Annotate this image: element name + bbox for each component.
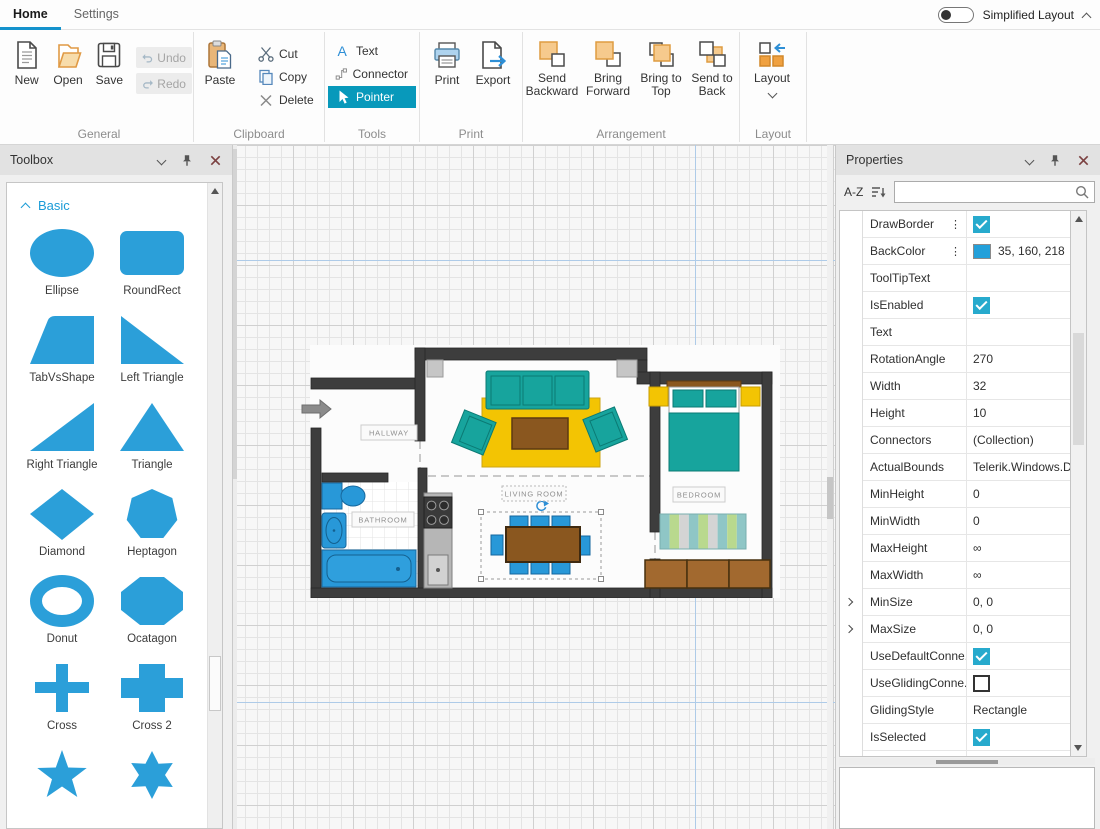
triangle-shape-icon xyxy=(119,401,185,453)
toolbox-shape-star5[interactable] xyxy=(29,749,95,807)
expander-icon[interactable] xyxy=(845,625,853,633)
dining-table[interactable] xyxy=(506,527,580,562)
undo-icon xyxy=(142,51,153,65)
property-value[interactable] xyxy=(967,751,1071,757)
toolbox-shape-tabvsshape[interactable]: TabVsShape xyxy=(29,314,95,384)
bedroom-rug[interactable] xyxy=(660,514,746,549)
property-name: IsEnabled xyxy=(863,292,967,318)
value-text: 0 xyxy=(973,514,980,528)
svg-text:A: A xyxy=(338,43,348,59)
guide-line-horizontal xyxy=(233,702,835,703)
properties-title: Properties xyxy=(846,153,903,167)
property-name: MinHeight xyxy=(863,481,967,507)
connector-ic on xyxy=(335,66,348,82)
room-label-bedroom[interactable]: BEDROOM xyxy=(673,487,725,502)
tab-settings[interactable]: Settings xyxy=(61,0,132,30)
property-row[interactable]: Text xyxy=(863,319,1071,346)
toolbox-shape-heptagon[interactable]: Heptagon xyxy=(119,488,185,558)
ellipse-shape-icon xyxy=(29,227,95,279)
property-row[interactable]: MaxWidth∞ xyxy=(863,562,1071,589)
bring-forward-button[interactable]: Bring Forward xyxy=(581,30,635,98)
heptagon-shape-icon xyxy=(119,488,185,540)
properties-collapse-icon[interactable] xyxy=(1025,155,1035,165)
property-name: MaxWidth xyxy=(863,562,967,588)
property-row[interactable]: MinSize0, 0 xyxy=(863,589,1071,616)
property-row[interactable]: RotationAngle270 xyxy=(863,346,1071,373)
property-row[interactable]: IsEnabled xyxy=(863,292,1071,319)
ribbon-group-arrangement: Send Backward Bring Forward Bring to Top… xyxy=(524,30,738,144)
property-name: Width xyxy=(863,373,967,399)
toolbox-shape-roundrect[interactable]: RoundRect xyxy=(119,227,185,297)
redo-button[interactable]: Redo xyxy=(136,73,192,94)
checkbox[interactable] xyxy=(973,216,990,233)
value-text: 32 xyxy=(973,379,986,393)
property-value[interactable]: 270 xyxy=(967,346,1071,372)
color-value-text: 35, 160, 218 xyxy=(998,244,1065,258)
text-icon: A xyxy=(335,43,351,59)
star5-shape-icon xyxy=(29,749,95,801)
value-text: ∞ xyxy=(973,568,982,582)
sort-alphabetical-button[interactable]: A-Z xyxy=(839,185,870,199)
delete-x-icon xyxy=(258,92,274,108)
property-row[interactable]: ToolTipText xyxy=(863,265,1071,292)
roundrect-shape-icon xyxy=(119,227,185,279)
ribbon-group-layout: Layout Layout xyxy=(741,30,805,144)
property-name: RotationAngle xyxy=(863,346,967,372)
property-value[interactable] xyxy=(967,643,1071,669)
bring-forward-icon xyxy=(593,39,623,69)
property-value[interactable]: (Collection) xyxy=(967,427,1071,453)
property-value[interactable]: 32 xyxy=(967,373,1071,399)
simplified-layout-label: Simplified Layout xyxy=(983,8,1074,22)
toolbox-shape-triangle[interactable]: Triangle xyxy=(119,401,185,471)
pointer-cursor-icon xyxy=(335,89,351,105)
property-row[interactable]: MinHeight0 xyxy=(863,481,1071,508)
property-value[interactable]: Rectangle xyxy=(967,697,1071,723)
property-row[interactable]: MinWidth0 xyxy=(863,508,1071,535)
svg-text:LIVING ROOM: LIVING ROOM xyxy=(505,490,564,499)
property-row[interactable]: Connectors(Collection) xyxy=(863,427,1071,454)
properties-scrollbar[interactable] xyxy=(1071,210,1087,757)
ribbon-group-clipboard: Paste Cut Copy Delete xyxy=(195,30,323,144)
tabvsshape-shape-icon xyxy=(29,314,95,366)
shape-label: Diamond xyxy=(39,546,85,558)
shape-label: RoundRect xyxy=(123,285,181,297)
bring-to-top-button[interactable]: Bring to Top xyxy=(637,30,685,98)
value-text: 0, 0 xyxy=(973,622,993,636)
group-label-print: Print xyxy=(421,127,521,141)
checkbox[interactable] xyxy=(973,729,990,746)
value-text: (Collection) xyxy=(973,433,1034,447)
property-name: MaxHeight xyxy=(863,535,967,561)
toolbox-body: Basic EllipseRoundRectTabVsShapeLeft Tri… xyxy=(6,182,223,829)
scroll-up-icon[interactable] xyxy=(1075,216,1083,222)
room-label-hallway[interactable]: HALLWAY xyxy=(361,425,417,440)
property-grid-rows: DrawBorder⋮BackColor⋮35, 160, 218ToolTip… xyxy=(863,211,1071,756)
send-backward-icon xyxy=(537,39,567,69)
property-name: DrawBorder⋮ xyxy=(863,211,967,237)
room-label-living-room[interactable]: LIVING ROOM xyxy=(502,486,566,501)
send-backward-button[interactable]: Send Backward xyxy=(525,30,579,98)
search-input[interactable] xyxy=(895,183,1074,201)
property-row[interactable]: UseGlidingConne... xyxy=(863,670,1071,697)
application-window: Home Settings Simplified Layout New Open xyxy=(0,0,1100,829)
headboard[interactable] xyxy=(667,381,741,387)
scroll-down-icon[interactable] xyxy=(1074,745,1082,751)
property-grid-gutter xyxy=(840,211,863,756)
checkbox[interactable] xyxy=(973,675,990,692)
property-row[interactable]: UseDefaultConne... xyxy=(863,643,1071,670)
bring-to-top-icon xyxy=(646,39,676,69)
properties-pin-icon[interactable] xyxy=(1048,153,1062,168)
ribbon: New Open Save Undo Re xyxy=(0,30,1100,145)
print-button[interactable]: Print xyxy=(425,30,469,87)
value-text: Telerik.Windows.Di xyxy=(973,460,1071,474)
shape-label: Left Triangle xyxy=(120,372,183,384)
search-icon[interactable] xyxy=(1074,184,1090,200)
toolbox-shape-cross[interactable]: Cross xyxy=(29,662,95,732)
checkbox[interactable] xyxy=(973,648,990,665)
group-label-general: General xyxy=(6,127,192,141)
property-name: GlidingStyle xyxy=(863,697,967,723)
toolbox-shape-diamond[interactable]: Diamond xyxy=(29,488,95,558)
cut-scissors-icon xyxy=(258,46,274,62)
property-name: Text xyxy=(863,319,967,345)
ribbon-divider xyxy=(193,32,194,142)
open-folder-icon xyxy=(52,39,84,71)
toolbox-shape-righttriangle[interactable]: Right Triangle xyxy=(27,401,98,471)
property-row[interactable]: Width32 xyxy=(863,373,1071,400)
save-floppy-icon xyxy=(93,39,125,71)
toolbox-scrollbar[interactable] xyxy=(207,183,222,828)
properties-toolbar: A-Z xyxy=(839,178,1095,206)
layout-button[interactable]: Layout xyxy=(741,30,803,97)
paste-button[interactable]: Paste xyxy=(195,30,245,111)
group-label-clipboard: Clipboard xyxy=(195,127,323,141)
paste-clipboard-icon xyxy=(204,39,236,71)
property-value[interactable]: 0, 0 xyxy=(967,616,1071,642)
toolbox-shape-donut[interactable]: Donut xyxy=(29,575,95,645)
property-value[interactable]: ∞ xyxy=(967,535,1071,561)
property-row[interactable]: MaxSize0, 0 xyxy=(863,616,1071,643)
ribbon-group-general: New Open Save Undo Re xyxy=(6,30,192,144)
shape-label: Ocatagon xyxy=(127,633,177,645)
property-name: Height xyxy=(863,400,967,426)
collapse-ribbon-icon[interactable] xyxy=(1082,12,1092,22)
property-value[interactable]: 0 xyxy=(967,481,1071,507)
property-value[interactable] xyxy=(967,292,1071,318)
canvas-scrollbar-right[interactable] xyxy=(827,145,833,829)
scrollbar-thumb[interactable] xyxy=(209,656,221,711)
coffee-table[interactable] xyxy=(512,418,568,449)
property-row[interactable]: ActualBoundsTelerik.Windows.Di xyxy=(863,454,1071,481)
simplified-layout-toggle[interactable] xyxy=(938,7,974,23)
stove[interactable] xyxy=(424,497,452,528)
property-value[interactable]: ∞ xyxy=(967,562,1071,588)
property-name: MinWidth xyxy=(863,508,967,534)
wardrobe[interactable] xyxy=(645,560,770,588)
svg-text:HALLWAY: HALLWAY xyxy=(369,429,409,438)
donut-shape-icon xyxy=(29,575,95,627)
search-box xyxy=(894,181,1095,203)
row-menu-icon[interactable]: ⋮ xyxy=(950,245,966,258)
scrollbar-thumb[interactable] xyxy=(827,477,833,519)
toolbox-close-icon[interactable] xyxy=(209,154,222,167)
property-value[interactable]: 35, 160, 218 xyxy=(967,238,1071,264)
undo-button[interactable]: Undo xyxy=(136,47,192,68)
value-text: 0, 0 xyxy=(973,595,993,609)
toolbox-title: Toolbox xyxy=(10,153,53,167)
toolbox-shape-lefttriangle[interactable]: Left Triangle xyxy=(119,314,185,384)
ribbon-divider xyxy=(522,32,523,142)
property-name xyxy=(863,751,967,757)
toolbox-shape-octagon[interactable]: Ocatagon xyxy=(119,575,185,645)
send-to-back-button[interactable]: Send to Back xyxy=(687,30,737,98)
bathroom-sink[interactable] xyxy=(322,513,346,548)
shape-grid: EllipseRoundRectTabVsShapeLeft TriangleR… xyxy=(7,213,222,807)
value-text: Rectangle xyxy=(973,703,1027,717)
property-name: IsSelected xyxy=(863,724,967,750)
toolbox-section-basic[interactable]: Basic xyxy=(7,183,222,213)
toolbox-pin-icon[interactable] xyxy=(180,153,194,168)
property-name: BackColor⋮ xyxy=(863,238,967,264)
ribbon-divider xyxy=(806,32,807,142)
sofa[interactable] xyxy=(486,371,589,409)
scrollbar-thumb[interactable] xyxy=(233,149,237,479)
checkbox[interactable] xyxy=(973,297,990,314)
checkbox[interactable] xyxy=(973,756,990,758)
property-row[interactable]: MaxHeight∞ xyxy=(863,535,1071,562)
section-collapse-icon xyxy=(21,203,31,213)
property-value[interactable] xyxy=(967,724,1071,750)
value-text: ∞ xyxy=(973,541,982,555)
property-value[interactable]: Telerik.Windows.Di xyxy=(967,454,1071,480)
value-text: 270 xyxy=(973,352,993,366)
text-tool-button[interactable]: A Text xyxy=(328,40,416,62)
delete-button[interactable]: Delete xyxy=(251,89,322,111)
ribbon-divider xyxy=(324,32,325,142)
pointer-tool-button[interactable]: Pointer xyxy=(328,86,416,108)
cut-button[interactable]: Cut xyxy=(251,43,322,65)
property-row[interactable]: IsSelected xyxy=(863,724,1071,751)
property-value[interactable]: 0 xyxy=(967,508,1071,534)
copy-button[interactable]: Copy xyxy=(251,66,322,88)
diamond-shape-icon xyxy=(29,488,95,540)
svg-text:BEDROOM: BEDROOM xyxy=(677,491,721,500)
property-row[interactable] xyxy=(863,751,1071,757)
toolbox-shape-cross2[interactable]: Cross 2 xyxy=(119,662,185,732)
toolbox-panel: Toolbox Basic EllipseRoundRectTabVsShape… xyxy=(0,145,233,829)
printer-icon xyxy=(431,39,463,71)
new-document-icon xyxy=(11,39,43,71)
cross2-shape-icon xyxy=(119,662,185,714)
righttriangle-shape-icon xyxy=(29,401,95,453)
property-value[interactable]: 10 xyxy=(967,400,1071,426)
value-text: 10 xyxy=(973,406,986,420)
export-button[interactable]: Export xyxy=(469,30,517,87)
svg-text:BATHROOM: BATHROOM xyxy=(358,516,407,525)
diagram-canvas[interactable]: HALLWAY BATHROOM LIVING ROOM BEDROOM xyxy=(233,145,835,829)
property-name: UseGlidingConne... xyxy=(863,670,967,696)
property-name: ToolTipText xyxy=(863,265,967,291)
toolbox-collapse-icon[interactable] xyxy=(157,155,167,165)
shape-label: TabVsShape xyxy=(29,372,94,384)
property-description-box xyxy=(839,767,1095,829)
properties-header: Properties xyxy=(836,145,1100,175)
property-grid: DrawBorder⋮BackColor⋮35, 160, 218ToolTip… xyxy=(839,210,1071,757)
property-name: UseDefaultConne... xyxy=(863,643,967,669)
value-text: 0 xyxy=(973,487,980,501)
property-name: MaxSize xyxy=(863,616,967,642)
bed-blanket[interactable] xyxy=(669,413,739,471)
group-label-layout: Layout xyxy=(741,127,805,141)
layout-dropdown-icon[interactable] xyxy=(767,89,777,99)
group-label-tools: Tools xyxy=(326,127,418,141)
redo-icon xyxy=(142,77,153,91)
save-button[interactable]: Save xyxy=(89,30,130,94)
ribbon-divider xyxy=(739,32,740,142)
row-menu-icon[interactable]: ⋮ xyxy=(950,218,966,231)
toggle-knob xyxy=(941,10,951,20)
toolbox-header: Toolbox xyxy=(0,145,232,175)
cross-shape-icon xyxy=(29,662,95,714)
toolbox-shape-ellipse[interactable]: Ellipse xyxy=(29,227,95,297)
property-name: ActualBounds xyxy=(863,454,967,480)
toolbox-shape-star6[interactable] xyxy=(119,749,185,807)
ribbon-tabbar: Home Settings Simplified Layout xyxy=(0,0,1100,30)
properties-panel: Properties A-Z DrawBorder⋮BackColor⋮35, … xyxy=(835,145,1100,829)
property-row[interactable]: Height10 xyxy=(863,400,1071,427)
property-value[interactable] xyxy=(967,670,1071,696)
octagon-shape-icon xyxy=(119,575,185,627)
star6-shape-icon xyxy=(119,749,185,801)
shape-label: Cross 2 xyxy=(132,720,172,732)
open-button[interactable]: Open xyxy=(47,30,88,94)
group-label-arrangement: Arrangement xyxy=(524,127,738,141)
categorize-icon[interactable] xyxy=(870,184,886,200)
shape-label: Ellipse xyxy=(45,285,79,297)
property-value[interactable] xyxy=(967,319,1071,345)
ribbon-group-tools: A Text Connector Pointer Tools xyxy=(326,30,418,144)
tab-home[interactable]: Home xyxy=(0,0,61,30)
scroll-up-icon[interactable] xyxy=(211,188,219,194)
kitchen-sink[interactable] xyxy=(428,555,448,585)
new-button[interactable]: New xyxy=(6,30,47,94)
shape-label: Donut xyxy=(47,633,78,645)
splitter-grip xyxy=(936,760,998,764)
property-row[interactable]: GlidingStyleRectangle xyxy=(863,697,1071,724)
copy-icon xyxy=(258,69,274,85)
bathtub[interactable] xyxy=(322,550,416,587)
property-value[interactable]: 0, 0 xyxy=(967,589,1071,615)
guide-line-horizontal xyxy=(233,260,835,261)
ribbon-group-print: Print Export Print xyxy=(421,30,521,144)
shape-label: Triangle xyxy=(131,459,172,471)
export-icon xyxy=(477,39,509,71)
connector-tool-button[interactable]: Connector xyxy=(328,63,416,85)
scrollbar-thumb[interactable] xyxy=(1073,333,1084,445)
properties-close-icon[interactable] xyxy=(1077,154,1090,167)
floorplan-diagram[interactable]: HALLWAY BATHROOM LIVING ROOM BEDROOM xyxy=(300,345,780,598)
property-value[interactable] xyxy=(967,265,1071,291)
property-row[interactable]: DrawBorder⋮ xyxy=(863,211,1071,238)
property-value[interactable] xyxy=(967,211,1071,237)
color-swatch[interactable] xyxy=(973,244,991,259)
expander-icon[interactable] xyxy=(845,598,853,606)
shape-label: Right Triangle xyxy=(27,459,98,471)
layout-icon xyxy=(757,39,787,69)
panel-splitter[interactable] xyxy=(839,758,1095,765)
shape-label: Cross xyxy=(47,720,77,732)
canvas-scrollbar-left[interactable] xyxy=(233,145,237,829)
property-name: Connectors xyxy=(863,427,967,453)
property-row[interactable]: BackColor⋮35, 160, 218 xyxy=(863,238,1071,265)
property-name: MinSize xyxy=(863,589,967,615)
lefttriangle-shape-icon xyxy=(119,314,185,366)
send-to-back-icon xyxy=(697,39,727,69)
shape-label: Heptagon xyxy=(127,546,177,558)
ribbon-divider xyxy=(419,32,420,142)
room-label-bathroom[interactable]: BATHROOM xyxy=(352,512,414,527)
